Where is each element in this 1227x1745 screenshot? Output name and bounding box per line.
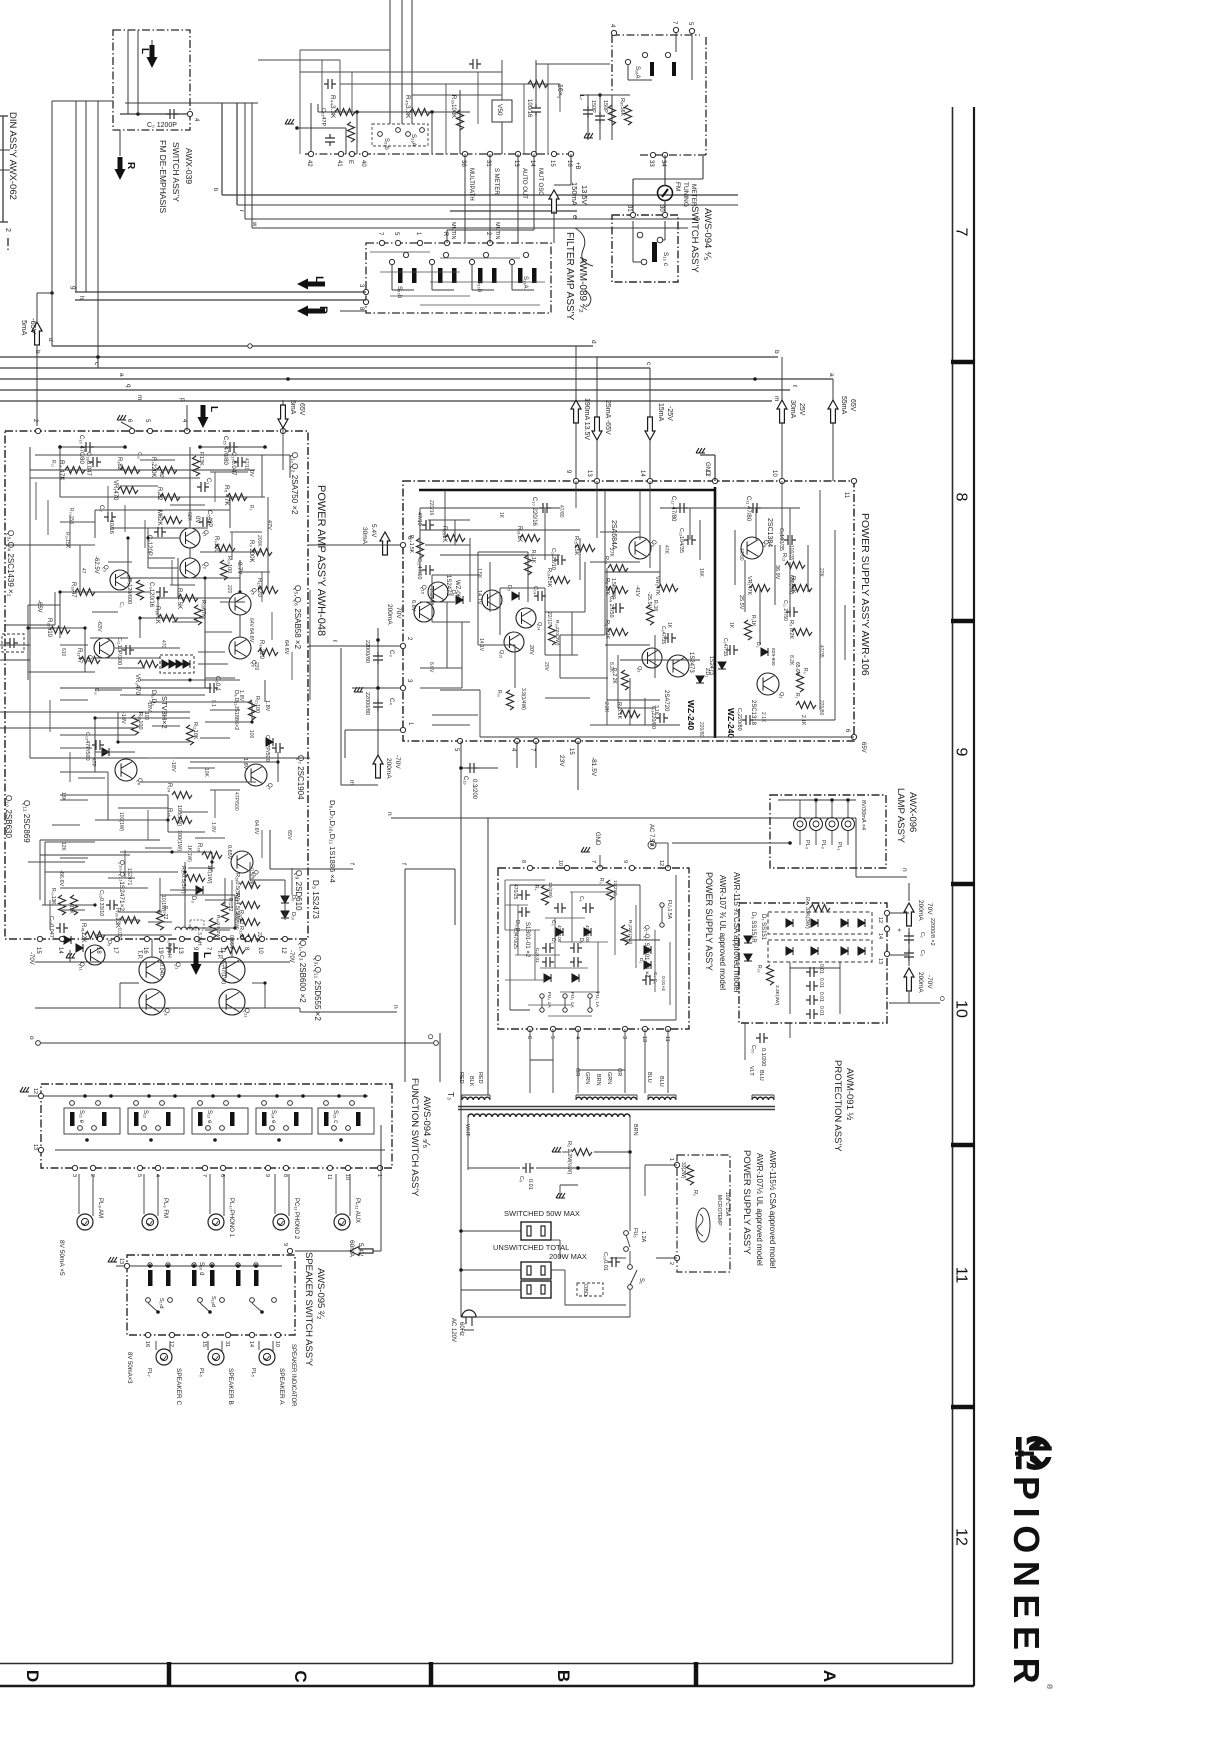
svg-text:OBD: OBD [582,1284,588,1296]
svg-text:5.4V: 5.4V [357,1243,364,1257]
svg-text:OR: OR [616,1068,622,1076]
svg-text:WZ-061: WZ-061 [454,580,460,602]
svg-text:18: 18 [95,947,101,954]
svg-text:3: 3 [71,1174,77,1177]
svg-text:-70V: -70V [28,952,34,965]
svg-text:23V: 23V [558,755,565,767]
svg-text:15: 15 [549,160,555,167]
svg-text:BRN: BRN [632,1124,638,1136]
svg-text:R₁₃1.5K: R₁₃1.5K [176,588,182,609]
svg-text:AWM-089 ²⁄₂: AWM-089 ²⁄₂ [577,257,588,313]
svg-text:R₁₄ 1K: R₁₄ 1K [154,606,160,624]
svg-text:0V: 0V [194,516,200,523]
svg-text:PL₂: PL₂ [820,840,826,849]
svg-text:8: 8 [520,860,526,863]
svg-text:D₄: D₄ [578,938,584,944]
svg-text:Q₂: Q₂ [636,666,642,672]
svg-text:30: 30 [658,205,664,212]
svg-text:12: 12 [168,1341,174,1347]
svg-text:C₁₃104/35: C₁₃104/35 [678,528,684,553]
svg-text:C₅49P: C₅49P [206,510,212,527]
svg-text:R₂ 2.2M(½W): R₂ 2.2M(½W) [566,1141,573,1174]
svg-text:n: n [392,1005,399,1009]
svg-text:C₁₁ 27/50: C₁₁ 27/50 [782,600,788,621]
svg-text:31: 31 [626,205,632,212]
svg-text:1S2473: 1S2473 [688,652,694,673]
svg-text:D₆: D₆ [290,895,296,901]
svg-text:R₄₄3.3K: R₄₄3.3K [329,95,336,119]
svg-text:Q₁₁: Q₁₁ [78,962,84,971]
svg-text:5: 5 [549,1036,555,1039]
svg-text:OR: OR [574,1068,580,1076]
svg-text:R₁3.1K: R₁3.1K [616,702,622,719]
svg-text:1K: 1K [728,622,734,629]
svg-text:C₁₈0.047: C₁₈0.047 [85,452,91,477]
svg-text:GND: GND [704,462,710,476]
svg-text:C₈ 27/50: C₈ 27/50 [608,596,614,618]
svg-text:16×₁: 16×₁ [556,84,563,99]
svg-text:C₁₆: C₁₆ [136,452,142,459]
svg-text:AUTO OUT: AUTO OUT [521,168,527,199]
svg-text:A: A [648,843,654,847]
svg-text:C₁: C₁ [205,478,211,484]
svg-text:10: 10 [771,470,777,477]
svg-text:-18V: -18V [146,700,152,712]
svg-text:2: 2 [4,228,11,232]
svg-text:f: f [348,863,355,865]
svg-text:Q₅: Q₅ [250,588,256,596]
svg-text:R₃₉100K: R₃₉100K [450,95,456,118]
svg-text:S₁₂ c: S₁₂ c [662,252,669,267]
svg-text:-41V: -41V [634,585,640,597]
svg-text:C₅: C₅ [118,602,124,608]
svg-text:8V 50mA×3: 8V 50mA×3 [126,1352,132,1384]
svg-text:T₃: T₃ [446,1092,455,1100]
svg-text:Q₆: Q₆ [650,540,656,548]
svg-text:65V: 65V [849,399,856,412]
svg-text:d: d [47,338,54,342]
svg-text:C₂ 1200P: C₂ 1200P [147,122,177,129]
svg-text:S₂₁b: S₂₁b [383,138,389,150]
svg-text:15: 15 [35,947,41,954]
svg-text:R₂₀15K: R₂₀15K [68,508,74,525]
svg-text:S₁₅ c: S₁₅ c [332,1110,338,1123]
svg-text:47P: 47P [90,758,96,768]
svg-text:5mA: 5mA [20,320,29,335]
svg-text:1S2473: 1S2473 [708,656,714,675]
svg-text:-70V: -70V [394,755,401,769]
svg-text:4: 4 [574,1036,580,1039]
svg-text:Q₃: Q₃ [163,1008,170,1016]
svg-text:T.P.: T.P. [216,950,222,960]
svg-text:R₁₄: R₁₄ [603,556,609,565]
svg-text:R₁₃: R₁₃ [781,553,787,561]
svg-text:Q₁₁: Q₁₁ [243,1008,250,1018]
svg-text:S₁₆A: S₁₆A [634,66,640,78]
svg-text:2.2K: 2.2K [603,702,609,713]
svg-text:C₁₇0.047: C₁₇0.047 [230,452,236,476]
svg-text:4.5(5W): 4.5(5W) [233,912,239,930]
svg-text:R₅: R₅ [248,505,254,511]
svg-text:470: 470 [160,640,166,649]
svg-text:D₃,D₄: D₃,D₄ [514,920,520,935]
svg-text:C₁₆ 470/80: C₁₆ 470/80 [78,435,84,464]
svg-text:100: 100 [248,730,254,739]
svg-text:41: 41 [336,160,342,167]
svg-text:12: 12 [280,947,286,954]
svg-text:L: L [139,48,150,54]
svg-text:MULTIPATH: MULTIPATH [468,168,474,201]
svg-text:FM DE-EMPHASIS: FM DE-EMPHASIS [158,140,168,214]
svg-text:POWER SUPPLY ASS'Y: POWER SUPPLY ASS'Y [741,1150,752,1255]
svg-text:70V: 70V [395,607,402,619]
svg-text:C₅47/35: C₅47/35 [722,638,728,656]
svg-text:Q₁: Q₁ [202,530,208,537]
svg-text:POWER AMP ASS'Y AWH-048: POWER AMP ASS'Y AWH-048 [315,485,327,636]
svg-text:610: 610 [60,648,66,657]
svg-text:R₁: R₁ [692,1190,698,1196]
svg-text:200mA: 200mA [386,604,393,625]
svg-text:p: p [179,398,186,402]
svg-text:q: q [125,384,132,388]
svg-text:220: 220 [253,662,259,671]
svg-text:C₁₁ 47/80: C₁₁ 47/80 [745,496,751,522]
svg-text:R₃: R₃ [802,668,808,674]
svg-text:10(1W): 10(1W) [160,895,166,912]
svg-text:VR₁47K: VR₁47K [746,576,752,596]
svg-text:D₃: D₃ [190,896,196,903]
svg-text:C₉: C₉ [518,1176,524,1182]
svg-text:Q₁₀,Q₁₁1S2471×2: Q₁₀,Q₁₁1S2471×2 [118,860,125,911]
svg-text:RED: RED [458,1072,464,1084]
svg-text:9: 9 [282,1243,288,1246]
svg-text:R₁1K: R₁1K [750,615,756,627]
svg-text:R₅ 22K: R₅ 22K [790,576,796,594]
svg-text:30mA: 30mA [361,527,368,545]
svg-text:M62K: M62K [156,510,162,526]
svg-text:Q₄: Q₄ [86,655,92,663]
svg-text:FU₅1.5A: FU₅1.5A [666,900,672,920]
svg-text:L: L [208,406,219,412]
svg-text:1S2473: 1S2473 [428,588,434,605]
svg-text:O: O [938,996,945,1001]
svg-text:C₃120/16: C₃120/16 [148,582,154,608]
svg-text:1.8V: 1.8V [242,758,248,770]
svg-text:1S2473: 1S2473 [445,575,451,596]
svg-text:13: 13 [118,1258,124,1264]
svg-text:4: 4 [154,1174,160,1177]
svg-text:C₁₄: C₁₄ [532,586,538,595]
svg-text:R₄: R₄ [533,885,539,891]
svg-text:C₁₀ 220/16: C₁₀ 220/16 [531,497,537,527]
svg-text:S₁₇d: S₁₇d [158,1298,164,1308]
svg-text:190mA 13.5V: 190mA 13.5V [583,398,590,440]
svg-text:16K: 16K [698,568,704,578]
svg-text:8.2K: 8.2K [788,655,794,666]
svg-text:R₃₄1.5K: R₃₄1.5K [408,535,414,554]
svg-text:9: 9 [953,748,970,757]
svg-text:L₇: L₇ [578,95,584,100]
svg-text:Q₃: Q₃ [102,565,108,573]
svg-text:UNSWITCHED TOTAL: UNSWITCHED TOTAL [493,1243,569,1252]
svg-text:AWX-096: AWX-096 [907,792,918,832]
svg-text:C₂: C₂ [98,505,104,512]
svg-text:C₁₂0.33/10: C₁₂0.33/10 [98,890,104,916]
svg-text:R13K: R13K [198,452,204,466]
svg-text:R₁₉1.5K: R₁₉1.5K [546,568,552,588]
svg-text:3.9(1/4W): 3.9(1/4W) [520,688,526,710]
svg-text:WHT: WHT [464,1124,470,1137]
svg-text:Q₂: Q₂ [202,562,208,570]
svg-text:25mA -65V: 25mA -65V [604,400,611,435]
svg-text:AWR-107 ¾ UL approved model: AWR-107 ¾ UL approved model [718,875,727,990]
svg-text:16: 16 [144,1341,150,1347]
svg-text:11: 11 [326,1174,332,1180]
svg-text:8V/30mA ×4: 8V/30mA ×4 [860,800,866,830]
svg-text:D₁₀: D₁₀ [290,912,296,920]
svg-text:27K: 27K [608,548,614,558]
svg-text:MICROTEMP: MICROTEMP [716,1195,722,1226]
svg-text:g: g [70,286,77,290]
svg-text:1K(1W): 1K(1W) [186,845,192,862]
svg-text:BLK: BLK [468,1076,474,1087]
svg-text:R₅₄ 33K(3W): R₅₄ 33K(3W) [804,897,810,929]
svg-text:C: C [291,1670,310,1682]
svg-text:13K: 13K [68,905,74,915]
svg-text:7: 7 [201,1174,207,1177]
svg-text:R₂₉1K: R₂₉1K [441,526,447,542]
svg-text:14: 14 [639,470,645,477]
svg-text:TUNING: TUNING [682,182,689,207]
svg-text:BLU: BLU [646,1072,652,1083]
svg-text:R₅ 47K: R₅ 47K [223,485,230,506]
svg-text:T.P.: T.P. [136,950,142,960]
svg-text:1.5K: 1.5K [476,568,482,579]
svg-text:15: 15 [568,748,574,755]
svg-text:47/10: 47/10 [416,512,422,526]
svg-text:Q₄: Q₄ [762,540,768,548]
svg-text:64.6V: 64.6V [253,820,259,835]
svg-text:SWITCHED 50W MAX: SWITCHED 50W MAX [504,1209,580,1218]
svg-text:FU₁ 1A: FU₁ 1A [594,992,600,1008]
svg-text:6.6V: 6.6V [428,662,434,673]
svg-text:0.1: 0.1 [210,700,216,707]
svg-text:5: 5 [136,1174,142,1177]
svg-text:PL₃: PL₃ [804,840,810,849]
svg-text:C₁₀: C₁₀ [93,688,99,695]
svg-text:19: 19 [157,947,163,954]
svg-text:w: w [251,221,257,227]
svg-text:5mA: 5mA [289,400,296,415]
svg-text:ℓ: ℓ [331,640,338,642]
svg-text:Q₉ 2SD610: Q₉ 2SD610 [294,870,303,911]
svg-text:100: 100 [143,712,149,721]
svg-text:Q₁₄: Q₁₄ [536,622,542,631]
svg-text:0.65V: 0.65V [226,845,232,860]
svg-text:13: 13 [641,1036,647,1042]
svg-text:Q₅,Q₆ 2SAB58 ×2: Q₅,Q₆ 2SAB58 ×2 [293,585,302,650]
svg-text:25.5V: 25.5V [738,595,744,610]
svg-text:PC₁₁ PHONO 2: PC₁₁ PHONO 2 [293,1198,299,1240]
svg-text:109°C 15A: 109°C 15A [724,1192,730,1217]
svg-text:A: A [820,1670,839,1682]
svg-text:0.7V: 0.7V [236,562,242,574]
svg-text:1K: 1K [666,622,672,629]
svg-text:VR₂47K: VR₂47K [654,576,660,596]
svg-text:64.6V: 64.6V [248,628,254,643]
svg-text:n: n [901,868,908,872]
svg-text:POWER SUPPLY ASS'Y AWR-106: POWER SUPPLY ASS'Y AWR-106 [859,513,871,676]
svg-text:9: 9 [264,1174,270,1177]
svg-text:R₃₁1K: R₃₁1K [516,526,522,542]
svg-text:150mA: 150mA [570,182,579,206]
svg-text:0.01: 0.01 [527,1179,533,1190]
svg-text:14.1V: 14.1V [476,590,482,605]
svg-text:13: 13 [32,1144,38,1150]
svg-text:0.5(5W): 0.5(5W) [248,868,254,886]
svg-text:1: 1 [668,1158,674,1161]
svg-text:22000/80: 22000/80 [364,640,370,663]
svg-text:1.2A: 1.2A [640,1231,646,1243]
svg-text:R₁₆220: R₁₆220 [258,640,264,659]
svg-text:FU₄ 1A: FU₄ 1A [546,992,552,1008]
svg-text:65V: 65V [298,403,305,416]
svg-text:11: 11 [843,492,849,499]
svg-text:O: O [426,1034,433,1040]
svg-text:R₂₄: R₂₄ [166,783,172,793]
svg-text:20V: 20V [528,645,534,655]
svg-text:AWR-115 ¾ CSA approved model: AWR-115 ¾ CSA approved model [732,872,741,993]
svg-text:65V: 65V [860,742,866,753]
svg-text:1S2471: 1S2471 [126,868,132,885]
svg-text:BLU: BLU [658,1076,664,1087]
svg-text:13: 13 [177,947,183,954]
svg-text:R₄₅3.3K: R₄₅3.3K [404,95,411,119]
svg-text:E: E [347,160,353,164]
svg-text:11: 11 [664,1036,670,1042]
svg-text:200K: 200K [256,535,262,547]
svg-text:R₁₈47: R₁₈47 [70,582,76,598]
svg-text:S₁₃ e: S₁₃ e [206,1110,212,1124]
svg-text:0.1/200: 0.1/200 [760,1048,766,1066]
svg-text:VR₃470: VR₃470 [134,674,140,695]
svg-text:SPEAKER INDICATOR: SPEAKER INDICATOR [290,1344,296,1407]
svg-text:R₁₅220: R₁₅220 [256,578,262,597]
svg-text:2SA684A: 2SA684A [610,520,617,550]
svg-text:e: e [571,215,578,219]
svg-text:AWX-039: AWX-039 [184,148,194,184]
svg-text:8.2K: 8.2K [608,662,614,673]
svg-text:20V: 20V [543,662,549,672]
svg-text:1.8V: 1.8V [238,690,244,702]
svg-text:-62.5V: -62.5V [93,556,99,574]
svg-text:R₂₁100: R₂₁100 [254,696,260,713]
svg-text:L: L [201,952,212,958]
svg-text:7: 7 [590,860,596,863]
svg-text:R₈82: R₈82 [156,487,162,501]
svg-text:R₁₁47: R₁₁47 [76,648,82,664]
svg-text:22/10: 22/10 [546,612,552,625]
svg-text:a: a [118,373,125,377]
svg-text:C₁₂ 47/80: C₁₂ 47/80 [670,496,676,522]
svg-text:FU₆: FU₆ [632,1228,638,1238]
svg-text:31: 31 [224,1341,230,1347]
svg-text:R₁₁10K: R₁₁10K [192,722,198,740]
svg-text:22: 22 [256,932,262,938]
svg-text:S₁₈d: S₁₈d [210,1296,216,1307]
svg-text:BLU: BLU [758,1070,764,1081]
svg-text:220/80: 220/80 [818,700,824,716]
svg-text:R₁₅1.5K: R₁₅1.5K [573,536,579,556]
svg-text:Q₁₅: Q₁₅ [420,585,426,595]
svg-text:R₁22K(2W): R₁22K(2W) [627,920,633,944]
svg-text:200mA: 200mA [917,900,924,921]
svg-text:C₉100/35: C₉100/35 [778,528,784,551]
svg-text:0.01: 0.01 [818,964,824,974]
svg-text:55mA: 55mA [840,396,847,415]
svg-text:-70V: -70V [926,975,933,989]
svg-text:D₇ SS151: D₇ SS151 [760,914,766,941]
svg-text:150P: 150P [590,100,596,113]
svg-text:PL₆: PL₆ [198,1368,204,1377]
svg-text:R₈₅56K: R₈₅56K [619,98,625,117]
svg-text:R₁82: R₁82 [116,457,122,471]
svg-text:S₁₆ d: S₁₆ d [198,1262,204,1275]
svg-text:10: 10 [557,860,563,866]
svg-text:C₂: C₂ [919,950,925,956]
svg-text:200mA: 200mA [917,972,924,993]
svg-text:SWITCH ASSʼY: SWITCH ASSʼY [171,142,181,202]
svg-text:12: 12 [32,1088,38,1094]
svg-text:PL₁₁ AUX: PL₁₁ AUX [354,1198,360,1223]
svg-text:Q₁,Q₃ 2SB600 ×2: Q₁,Q₃ 2SB600 ×2 [298,940,307,1003]
svg-text:AWR-115½ CSA approved model: AWR-115½ CSA approved model [768,1150,777,1269]
svg-text:13K: 13K [60,792,66,802]
svg-text:10: 10 [344,1174,350,1180]
svg-text:13: 13 [586,470,592,477]
svg-text:D₆,D₇,D₁₀,D₁₁ 1S1886 ×4: D₆,D₇,D₁₀,D₁₁ 1S1886 ×4 [328,800,337,883]
svg-text:100(1W): 100(1W) [118,812,124,832]
svg-text:PL₇: PL₇ [146,1368,152,1377]
svg-text:-18V: -18V [170,760,176,772]
svg-text:C₅120/600: C₅120/600 [126,578,132,604]
svg-text:100/35: 100/35 [788,545,794,561]
svg-text:30mA: 30mA [789,400,796,419]
svg-text:15: 15 [201,1341,207,1347]
svg-text:220/16: 220/16 [428,500,434,516]
svg-text:1K: 1K [498,512,504,519]
svg-text:MUTIN: MUTIN [494,222,500,239]
svg-text:-81.5V: -81.5V [590,757,597,777]
svg-text:AWS-094 ₅⁄₅: AWS-094 ₅⁄₅ [421,1096,432,1148]
svg-text:GRN: GRN [606,1072,612,1084]
svg-text:AWM-091 ½: AWM-091 ½ [844,1068,855,1121]
svg-text:62K: 62K [186,512,192,522]
svg-text:FUNCTION SWITCH ASS'Y: FUNCTION SWITCH ASS'Y [409,1078,420,1197]
svg-text:0.033: 0.033 [116,928,122,941]
svg-text:10: 10 [274,1341,280,1347]
svg-text:0V: 0V [248,470,254,477]
svg-text:47K: 47K [663,545,669,555]
svg-text:-25V: -25V [666,406,673,421]
svg-text:DIN ASS'Y AWX-062: DIN ASS'Y AWX-062 [7,112,18,200]
svg-text:h: h [78,296,85,300]
svg-text:0.01: 0.01 [818,992,824,1002]
svg-text:Q₇: Q₇ [266,783,272,790]
svg-text:o: o [28,1036,35,1040]
svg-text:PIONEER: PIONEER [1006,1476,1047,1691]
svg-text:14.1V: 14.1V [478,638,484,652]
